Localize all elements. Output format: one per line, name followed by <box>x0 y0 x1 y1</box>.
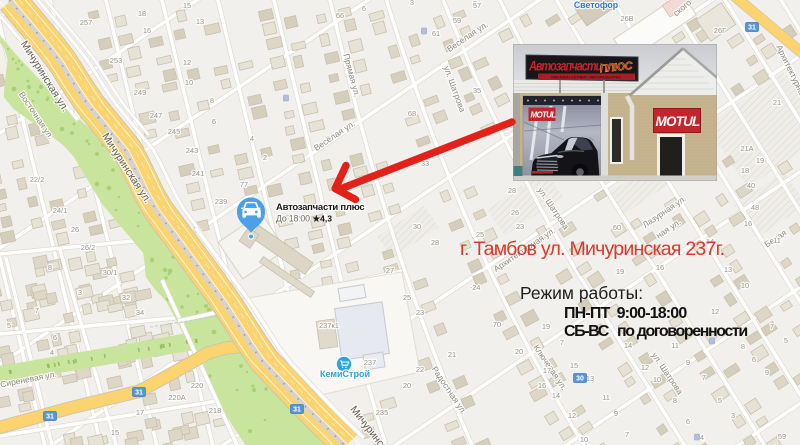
svg-text:32: 32 <box>122 293 130 302</box>
svg-text:21: 21 <box>773 98 781 107</box>
svg-text:253: 253 <box>110 56 123 65</box>
svg-text:КемиСтрой: КемиСтрой <box>320 369 370 379</box>
svg-text:7: 7 <box>625 430 629 439</box>
svg-text:243: 243 <box>186 146 199 155</box>
svg-text:24/1: 24/1 <box>53 206 68 215</box>
svg-text:31: 31 <box>748 25 756 32</box>
svg-text:6: 6 <box>752 355 756 364</box>
svg-text:МАГАЗИН·СЕРВИС·АВТОРАЗБОРКА: МАГАЗИН·СЕРВИС·АВТОРАЗБОРКА <box>551 75 621 80</box>
svg-text:18: 18 <box>741 166 749 175</box>
svg-text:31: 31 <box>46 414 54 421</box>
svg-text:31: 31 <box>135 390 143 397</box>
svg-text:12: 12 <box>711 307 719 316</box>
svg-text:8: 8 <box>673 396 677 405</box>
svg-text:14: 14 <box>624 341 632 350</box>
svg-text:61: 61 <box>432 29 440 38</box>
svg-text:26: 26 <box>511 208 519 217</box>
svg-text:-24: -24 <box>470 283 481 292</box>
svg-text:26/2: 26/2 <box>81 243 96 252</box>
svg-text:220: 220 <box>191 381 204 390</box>
svg-text:5: 5 <box>784 336 788 345</box>
svg-text:5: 5 <box>7 321 11 330</box>
svg-text:19: 19 <box>756 156 764 165</box>
svg-text:245: 245 <box>168 127 181 136</box>
svg-text:66: 66 <box>336 11 344 20</box>
svg-text:26: 26 <box>71 225 79 234</box>
svg-text:15: 15 <box>183 1 191 10</box>
svg-text:19: 19 <box>616 267 624 276</box>
svg-text:59: 59 <box>453 16 461 25</box>
svg-text:17: 17 <box>136 408 144 417</box>
svg-text:239: 239 <box>215 197 228 206</box>
svg-text:8: 8 <box>210 96 214 105</box>
svg-text:11: 11 <box>773 236 781 245</box>
svg-text:MOTUL: MOTUL <box>656 114 701 129</box>
svg-text:10: 10 <box>185 78 193 87</box>
svg-text:10: 10 <box>741 281 749 290</box>
svg-text:26В: 26В <box>620 14 633 23</box>
svg-text:235: 235 <box>376 408 389 417</box>
svg-text:11: 11 <box>602 393 610 402</box>
svg-text:4: 4 <box>700 433 704 442</box>
svg-text:10: 10 <box>580 435 588 444</box>
svg-text:70: 70 <box>493 320 501 329</box>
svg-text:13: 13 <box>724 265 732 274</box>
svg-text:247: 247 <box>150 111 163 120</box>
svg-text:16: 16 <box>538 381 546 390</box>
svg-text:31: 31 <box>293 407 301 414</box>
svg-text:8: 8 <box>741 342 745 351</box>
svg-text:9: 9 <box>614 409 618 418</box>
svg-text:15: 15 <box>111 428 119 437</box>
svg-text:34: 34 <box>136 308 144 317</box>
svg-text:Автозапчасти плюс: Автозапчасти плюс <box>276 202 364 213</box>
svg-text:257: 257 <box>80 18 93 27</box>
svg-text:До 18:00: До 18:00 <box>276 214 310 224</box>
svg-text:23: 23 <box>416 308 424 317</box>
svg-text:10: 10 <box>653 375 661 384</box>
svg-text:15: 15 <box>570 361 578 370</box>
svg-text:4: 4 <box>250 134 254 143</box>
svg-text:12: 12 <box>568 411 576 420</box>
svg-text:12: 12 <box>641 363 649 372</box>
svg-text:2: 2 <box>263 153 267 162</box>
svg-text:12: 12 <box>183 58 191 67</box>
svg-text:28: 28 <box>431 238 439 247</box>
svg-text:20: 20 <box>403 381 411 390</box>
svg-text:237к1: 237к1 <box>319 321 339 330</box>
svg-text:16: 16 <box>656 263 664 272</box>
svg-text:★4,3: ★4,3 <box>313 214 333 224</box>
svg-text:9: 9 <box>686 358 690 367</box>
svg-text:249: 249 <box>134 88 147 97</box>
svg-text:14: 14 <box>552 391 560 400</box>
svg-text:MOTUL: MOTUL <box>531 111 557 120</box>
svg-text:237: 237 <box>364 358 377 367</box>
svg-text:30: 30 <box>576 376 584 383</box>
svg-text:23: 23 <box>516 222 524 231</box>
svg-text:7: 7 <box>770 322 774 331</box>
svg-text:3: 3 <box>78 288 82 297</box>
svg-text:28: 28 <box>508 186 516 195</box>
svg-text:21: 21 <box>448 350 456 359</box>
svg-text:59: 59 <box>778 432 786 441</box>
svg-text:68: 68 <box>408 109 416 118</box>
svg-text:7: 7 <box>702 373 706 382</box>
svg-text:13: 13 <box>196 17 204 26</box>
svg-text:35: 35 <box>473 86 481 95</box>
svg-text:4: 4 <box>50 348 54 357</box>
svg-text:6: 6 <box>686 417 690 426</box>
svg-text:30: 30 <box>413 222 421 231</box>
svg-text:16: 16 <box>744 219 752 228</box>
svg-text:Светофор: Светофор <box>574 0 619 10</box>
svg-text:9: 9 <box>765 368 769 377</box>
svg-text:22/2: 22/2 <box>30 175 45 184</box>
svg-text:6: 6 <box>362 4 366 13</box>
svg-text:19: 19 <box>542 322 550 331</box>
svg-text:11: 11 <box>671 341 679 350</box>
svg-text:18: 18 <box>138 9 146 18</box>
svg-text:20: 20 <box>515 347 523 356</box>
svg-text:57: 57 <box>473 1 481 10</box>
svg-text:6: 6 <box>212 117 216 126</box>
svg-text:Автозапчасти: Автозапчасти <box>528 58 603 73</box>
svg-text:27: 27 <box>386 266 394 275</box>
svg-text:8: 8 <box>48 263 52 272</box>
svg-text:13: 13 <box>586 374 594 383</box>
svg-text:5: 5 <box>718 396 722 405</box>
svg-text:17: 17 <box>543 366 551 375</box>
svg-text:21А: 21А <box>740 144 753 153</box>
svg-text:77: 77 <box>240 180 248 189</box>
svg-text:6: 6 <box>53 333 57 342</box>
svg-text:16: 16 <box>143 26 151 35</box>
svg-text:48: 48 <box>751 203 759 212</box>
svg-text:26Г: 26Г <box>714 26 726 35</box>
svg-text:30/1: 30/1 <box>103 268 118 277</box>
svg-text:25: 25 <box>403 293 411 302</box>
svg-text:241: 241 <box>192 169 205 178</box>
svg-text:3: 3 <box>410 0 414 7</box>
svg-text:218: 218 <box>209 406 222 415</box>
svg-text:3: 3 <box>731 411 735 420</box>
svg-text:60: 60 <box>613 223 621 232</box>
svg-text:40: 40 <box>747 181 755 190</box>
svg-text:7: 7 <box>35 306 39 315</box>
svg-text:22: 22 <box>416 365 424 374</box>
svg-text:220А: 220А <box>168 393 186 402</box>
